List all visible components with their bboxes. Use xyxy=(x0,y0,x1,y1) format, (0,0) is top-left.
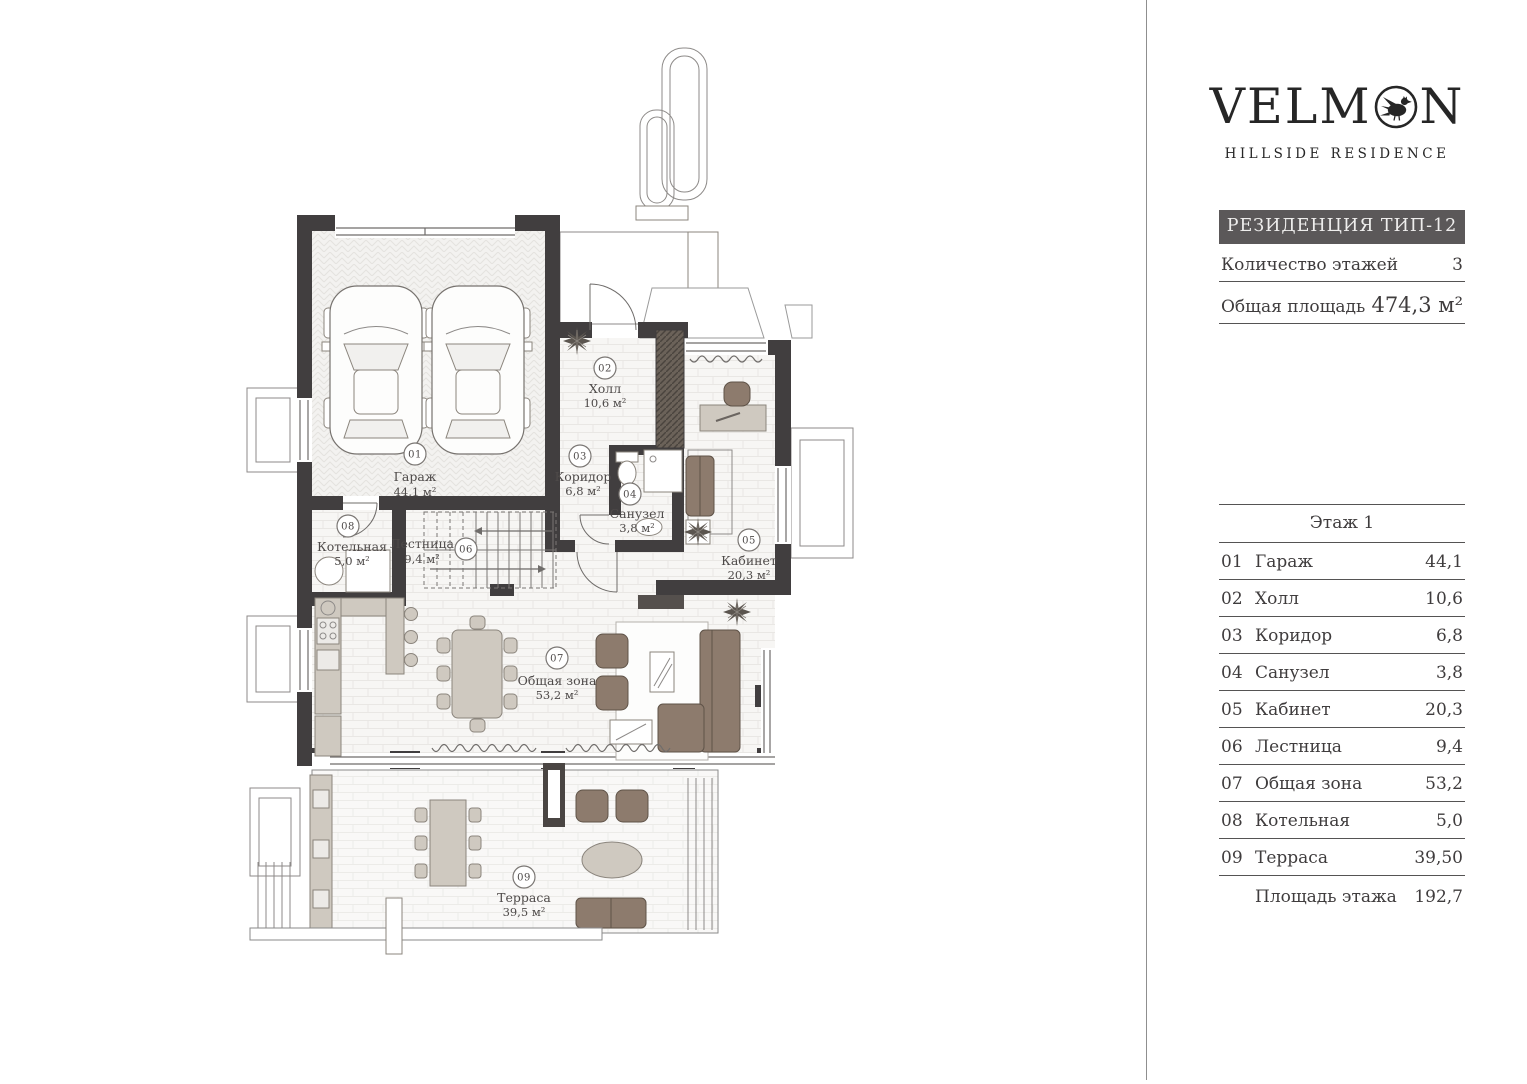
floor-area-table: Этаж 1 01 Гараж 44,1 02 Холл 10,6 03 Кор… xyxy=(1219,504,1465,914)
stove-icon xyxy=(317,618,339,644)
table-row: 04 Санузел 3,8 xyxy=(1219,654,1465,691)
room-area: 9,4 м² xyxy=(404,552,440,566)
info-row-floors: Количество этажей 3 xyxy=(1219,244,1465,282)
room-name: Лестница xyxy=(390,536,454,551)
room-number: 07 xyxy=(550,654,564,665)
table-row: 07 Общая зона 53,2 xyxy=(1219,765,1465,802)
kitchen-sink-icon xyxy=(317,650,339,670)
table-row: 08 Котельная 5,0 xyxy=(1219,802,1465,839)
room-number: 01 xyxy=(408,450,422,461)
brand-subtitle: HILLSIDE RESIDENCE xyxy=(1147,146,1527,162)
floorplan-sheet: { "brand": { "logo_left": "VELM", "logo_… xyxy=(0,0,1527,1080)
room-area: 10,6 м² xyxy=(584,396,627,410)
terrace-table xyxy=(430,800,466,886)
floor-plan: 01 Гараж 44,1 м² 02 Холл 10,6 м² 03 Кори… xyxy=(0,0,1146,1080)
terrace-armchair xyxy=(576,790,608,822)
decor-curve-outer xyxy=(662,48,707,200)
terrace-armchair xyxy=(616,790,648,822)
bar-stool xyxy=(405,654,418,667)
garage-door-line xyxy=(335,222,515,238)
room-area: 39,5 м² xyxy=(503,905,546,919)
table-row: 03 Коридор 6,8 xyxy=(1219,617,1465,654)
logo-text-left: VELM xyxy=(1210,82,1372,131)
room-name: Санузел xyxy=(610,506,665,521)
room-name: Кабинет xyxy=(721,553,777,568)
plant-hall xyxy=(563,327,591,355)
car-1 xyxy=(322,286,430,454)
armchair xyxy=(596,676,628,710)
info-sidebar: VELM N HILLSIDE RESIDENCE РЕЗИДЕНЦИЯ ТИП… xyxy=(1146,0,1527,1080)
floor-table-title: Этаж 1 xyxy=(1219,504,1465,543)
info-value: 474,3 м² xyxy=(1371,293,1463,317)
office-north-window xyxy=(684,340,768,355)
room-number: 05 xyxy=(742,536,756,547)
rooster-logo-icon xyxy=(1373,84,1419,130)
bay-window-office xyxy=(791,428,853,558)
terrace-pillar xyxy=(386,898,402,954)
plant-office xyxy=(684,518,712,546)
tv-console xyxy=(638,595,684,609)
toilet-icon xyxy=(618,461,636,485)
room-area: 44,1 м² xyxy=(394,485,437,499)
table-row: 02 Холл 10,6 xyxy=(1219,580,1465,617)
office-east-window xyxy=(775,466,791,544)
shower-icon xyxy=(644,450,682,492)
room-name: Котельная xyxy=(317,539,387,554)
sofa-l-chaise xyxy=(658,704,704,752)
room-number: 02 xyxy=(598,364,612,375)
kitchen-counter-low xyxy=(315,716,341,756)
kitchen-island xyxy=(386,598,404,674)
room-area: 3,8 м² xyxy=(619,521,655,535)
room-area: 53,2 м² xyxy=(536,688,579,702)
info-row-total-area: Общая площадь 474,3 м² xyxy=(1219,282,1465,324)
table-row: 06 Лестница 9,4 xyxy=(1219,728,1465,765)
armchair xyxy=(596,634,628,668)
table-total-row: Площадь этажа 192,7 xyxy=(1219,876,1465,914)
terrace-oval-rug xyxy=(582,842,642,878)
brand-logo: VELM N xyxy=(1147,82,1527,131)
entrance-door xyxy=(590,284,636,330)
terrace-steps-west xyxy=(258,862,290,930)
decor-base xyxy=(636,206,688,220)
info-value: 3 xyxy=(1452,255,1463,275)
room-number: 03 xyxy=(573,452,587,463)
decor-curve-small-inner xyxy=(647,117,667,203)
dining-table xyxy=(452,630,502,718)
room-name: Гараж xyxy=(394,469,437,484)
terrace-edge xyxy=(250,928,602,940)
kitchen-west-window xyxy=(297,628,312,692)
east-glass-wall xyxy=(761,648,775,755)
wardrobe xyxy=(656,330,684,448)
residence-info-panel: РЕЗИДЕНЦИЯ ТИП-12 Количество этажей 3 Об… xyxy=(1219,210,1465,324)
room-area: 20,3 м² xyxy=(728,568,771,582)
room-name: Коридор xyxy=(555,469,612,484)
bar-stool xyxy=(405,631,418,644)
room-number: 09 xyxy=(517,873,531,884)
bar-stool xyxy=(405,608,418,621)
table-row: 01 Гараж 44,1 xyxy=(1219,543,1465,580)
canopy-pier xyxy=(785,305,812,338)
room-number: 08 xyxy=(341,522,355,533)
info-label: Количество этажей xyxy=(1221,255,1398,275)
garage-west-window xyxy=(297,398,312,462)
room-area: 5,0 м² xyxy=(334,554,370,568)
residence-type-title: РЕЗИДЕНЦИЯ ТИП-12 xyxy=(1219,210,1465,244)
room-name: Общая зона xyxy=(518,673,597,688)
desk xyxy=(700,405,766,431)
room-area: 6,8 м² xyxy=(565,484,601,498)
plant-living xyxy=(723,598,751,626)
info-label: Общая площадь xyxy=(1221,297,1365,317)
bay-window-kitchen xyxy=(247,616,299,702)
room-number: 06 xyxy=(459,545,473,556)
table-row: 05 Кабинет 20,3 xyxy=(1219,691,1465,728)
sofa-l-vertical xyxy=(700,630,740,752)
logo-text-right: N xyxy=(1420,82,1465,131)
room-name: Холл xyxy=(589,381,621,396)
room-number: 04 xyxy=(623,490,637,501)
desk-chair xyxy=(724,382,750,406)
car-2 xyxy=(424,286,532,454)
bay-window-garage xyxy=(247,388,299,472)
table-row: 09 Терраса 39,50 xyxy=(1219,839,1465,876)
room-name: Терраса xyxy=(497,890,551,905)
